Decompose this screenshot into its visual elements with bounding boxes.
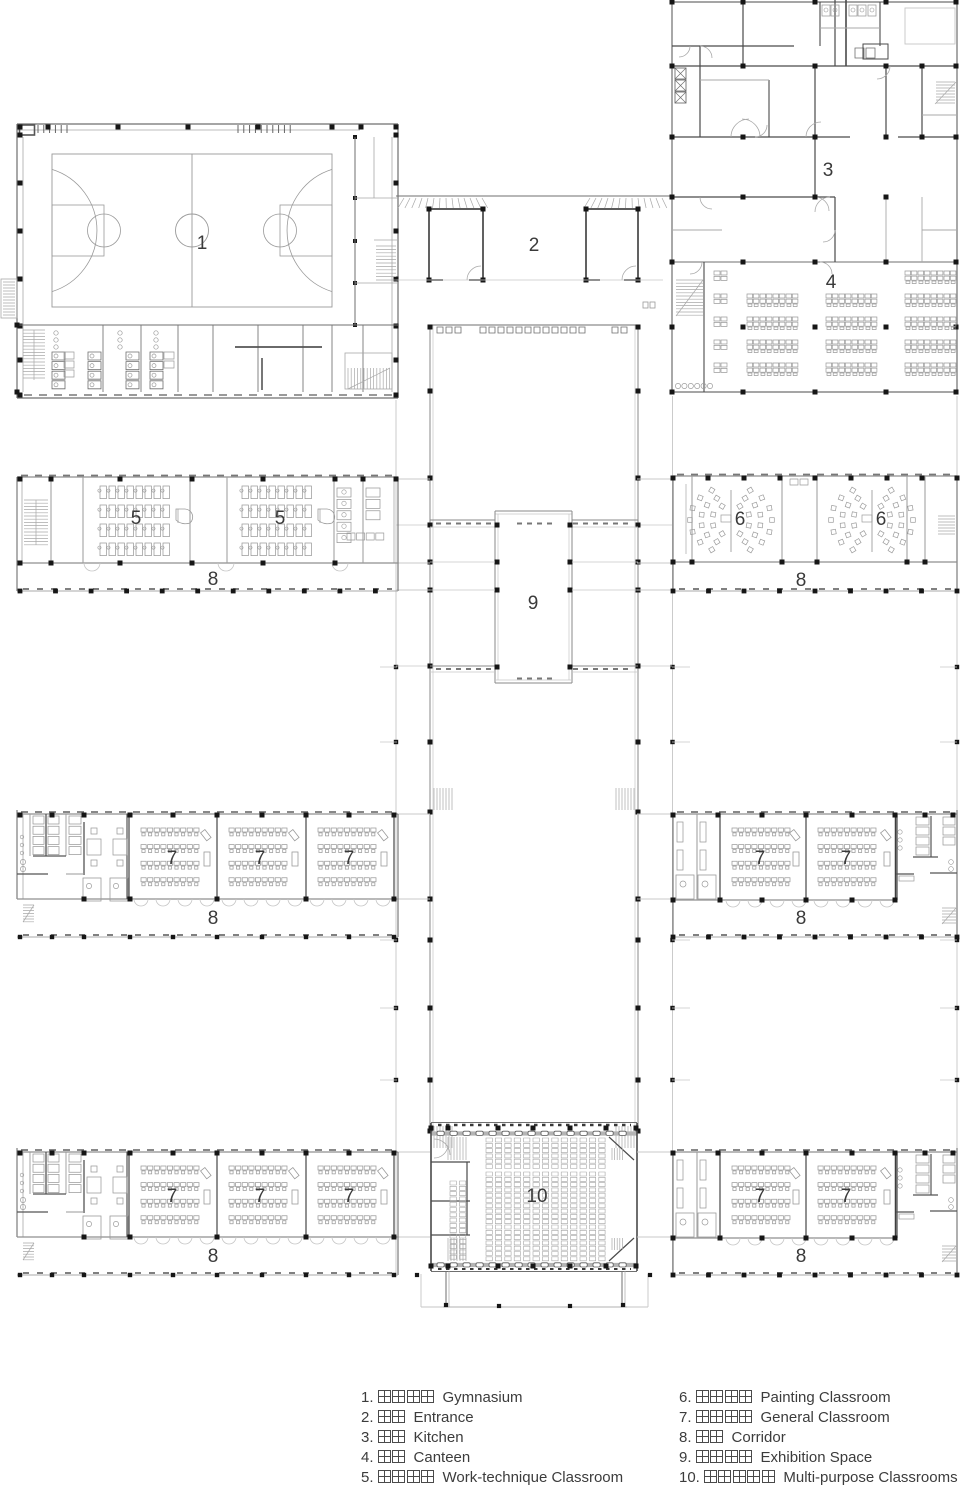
svg-text:7: 7 xyxy=(344,848,355,869)
svg-text:10: 10 xyxy=(526,1186,547,1207)
svg-text:8: 8 xyxy=(208,908,219,929)
svg-text:7: 7 xyxy=(841,1186,852,1207)
svg-text:6: 6 xyxy=(876,509,887,530)
svg-text:6: 6 xyxy=(735,509,746,530)
svg-text:8: 8 xyxy=(796,570,807,591)
svg-text:7: 7 xyxy=(755,1186,766,1207)
svg-text:8: 8 xyxy=(208,569,219,590)
svg-text:8: 8 xyxy=(796,908,807,929)
svg-text:7: 7 xyxy=(255,848,266,869)
svg-text:8: 8 xyxy=(796,1246,807,1267)
svg-text:5: 5 xyxy=(275,508,286,529)
svg-text:8: 8 xyxy=(208,1246,219,1267)
svg-text:1: 1 xyxy=(197,233,208,254)
svg-text:5: 5 xyxy=(131,508,142,529)
svg-text:7: 7 xyxy=(255,1186,266,1207)
svg-text:4: 4 xyxy=(826,272,837,293)
svg-text:7: 7 xyxy=(755,848,766,869)
svg-text:9: 9 xyxy=(528,593,539,614)
svg-text:2: 2 xyxy=(529,235,540,256)
svg-text:7: 7 xyxy=(841,848,852,869)
svg-text:7: 7 xyxy=(167,1186,178,1207)
svg-text:7: 7 xyxy=(344,1186,355,1207)
svg-text:7: 7 xyxy=(167,848,178,869)
svg-text:3: 3 xyxy=(823,160,834,181)
